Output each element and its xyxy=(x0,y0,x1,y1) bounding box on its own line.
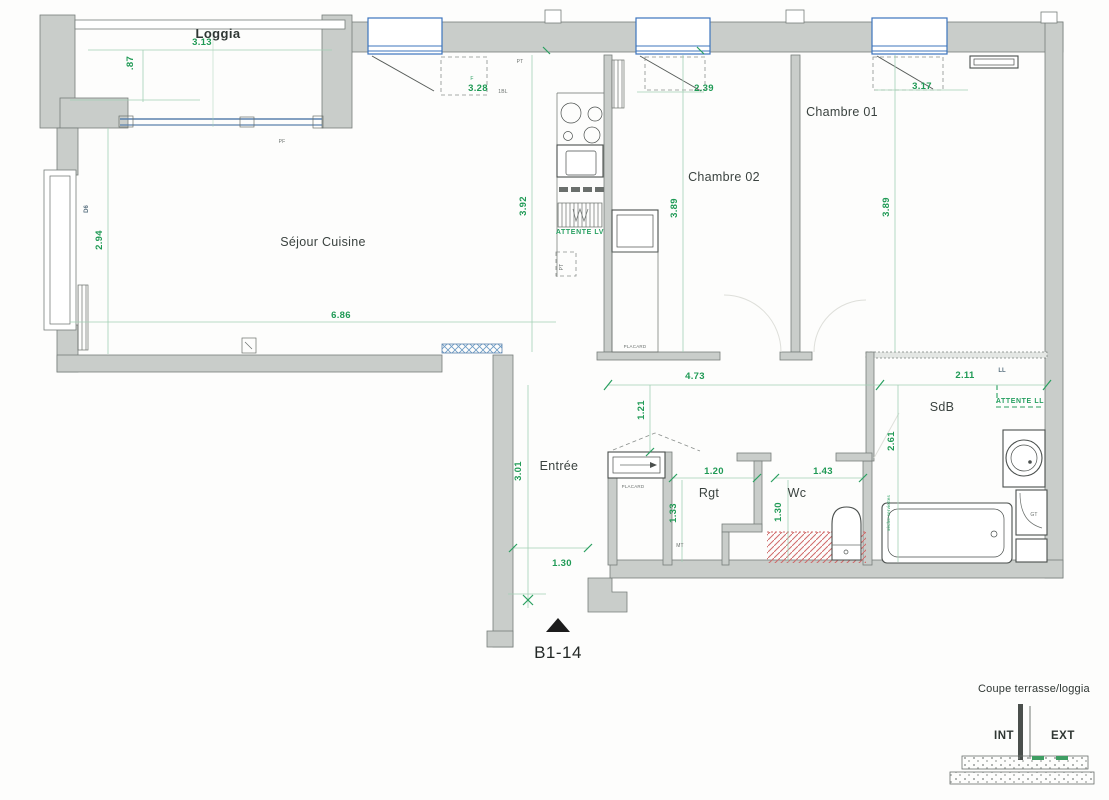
room-label-rgt: Rgt xyxy=(699,486,720,500)
dim-2-94: 2.94 xyxy=(94,230,105,250)
entrance-marker-triangle xyxy=(546,618,570,632)
dim-0-87: .87 xyxy=(125,56,136,70)
note-d6: D6 xyxy=(84,205,90,213)
fixtures-layer xyxy=(78,56,1047,632)
dim-1-30-bottom: 1.30 xyxy=(552,558,572,569)
note-ll: LL xyxy=(998,368,1006,374)
note-placard-entree: PLACARD xyxy=(622,484,645,489)
dim-1-21: 1.21 xyxy=(636,400,647,420)
entry-door-swing xyxy=(613,433,700,451)
room-label-sejour: Séjour Cuisine xyxy=(280,235,366,249)
dim-1-33: 1.33 xyxy=(668,503,679,523)
note-pf: PF xyxy=(279,139,286,145)
note-gt: GT xyxy=(1030,512,1037,518)
dim-3-17: 3.17 xyxy=(912,81,932,92)
insulated-wall xyxy=(866,352,1047,358)
section-title: Coupe terrasse/loggia xyxy=(978,683,1091,695)
section-slab-upper xyxy=(962,756,1088,769)
duct-box xyxy=(612,210,658,252)
outlet-box xyxy=(242,338,256,353)
room-label-sdb: SdB xyxy=(930,400,955,414)
section-slab-lower xyxy=(950,772,1094,784)
sdb-fixtures xyxy=(882,430,1047,563)
dim-2-39: 2.39 xyxy=(694,83,714,94)
vent-notch xyxy=(545,10,561,23)
note-f: F xyxy=(470,76,473,82)
dim-3-89-ch01: 3.89 xyxy=(881,197,892,217)
dim-1-20: 1.20 xyxy=(704,466,724,477)
threshold-hatch xyxy=(442,344,502,353)
dim-3-13: 3.13 xyxy=(192,37,212,48)
ext-label: EXT xyxy=(1051,730,1075,742)
dim-3-92: 3.92 xyxy=(518,196,529,216)
note-1bl: 1BL xyxy=(498,89,508,95)
toilet xyxy=(832,507,861,560)
room-label-wc: Wc xyxy=(788,486,807,500)
note-seche-serviettes: sèche-serviettes xyxy=(886,494,891,531)
note-attente-lv: ATTENTE LV xyxy=(556,229,604,236)
floor-plan-drawing: Loggia Séjour Cuisine Chambre 02 Chambre… xyxy=(0,0,1109,800)
radiator xyxy=(970,56,1018,68)
bathtub xyxy=(882,503,1012,563)
note-attente-ll: ATTENTE LL xyxy=(996,398,1044,405)
room-label-entree: Entrée xyxy=(540,459,579,473)
dim-2-11: 2.11 xyxy=(955,370,975,381)
dim-6-86: 6.86 xyxy=(331,310,351,321)
note-placard-ch02: PLACARD xyxy=(624,344,647,349)
dim-3-28: 3.28 xyxy=(468,83,488,94)
plan-id-label: B1-14 xyxy=(534,643,582,662)
note-pt-top: PT xyxy=(517,59,524,65)
radiator xyxy=(78,285,88,350)
drawer-band xyxy=(559,187,604,192)
room-label-chambre02: Chambre 02 xyxy=(688,170,760,184)
loggia-sliding-door xyxy=(119,116,323,128)
dim-4-73: 4.73 xyxy=(685,371,705,382)
radiator xyxy=(612,60,624,108)
dim-1-30-wc: 1.30 xyxy=(773,502,784,522)
note-pt-kitchen: PT xyxy=(559,264,565,271)
window-chambre01 xyxy=(872,18,947,54)
vent-notch xyxy=(1041,12,1057,23)
section-wall xyxy=(1018,704,1023,760)
sink-attente-lv xyxy=(558,203,602,227)
dim-3-89-ch02: 3.89 xyxy=(669,198,680,218)
vent-notch xyxy=(786,10,804,23)
int-label: INT xyxy=(994,730,1014,742)
dim-2-61: 2.61 xyxy=(886,431,897,451)
washbasin xyxy=(1006,440,1042,476)
placard-chambre02 xyxy=(612,252,658,352)
placard-entree xyxy=(608,452,665,478)
dim-3-01: 3.01 xyxy=(513,461,524,481)
floor-plan-page: Loggia Séjour Cuisine Chambre 02 Chambre… xyxy=(0,0,1109,800)
window-west xyxy=(44,170,76,330)
room-label-chambre01: Chambre 01 xyxy=(806,105,878,119)
window-sejour xyxy=(368,18,442,54)
note-mt: MT xyxy=(676,543,684,549)
section-detail: Coupe terrasse/loggia INT EXT xyxy=(950,683,1094,784)
dim-1-43: 1.43 xyxy=(813,466,833,477)
